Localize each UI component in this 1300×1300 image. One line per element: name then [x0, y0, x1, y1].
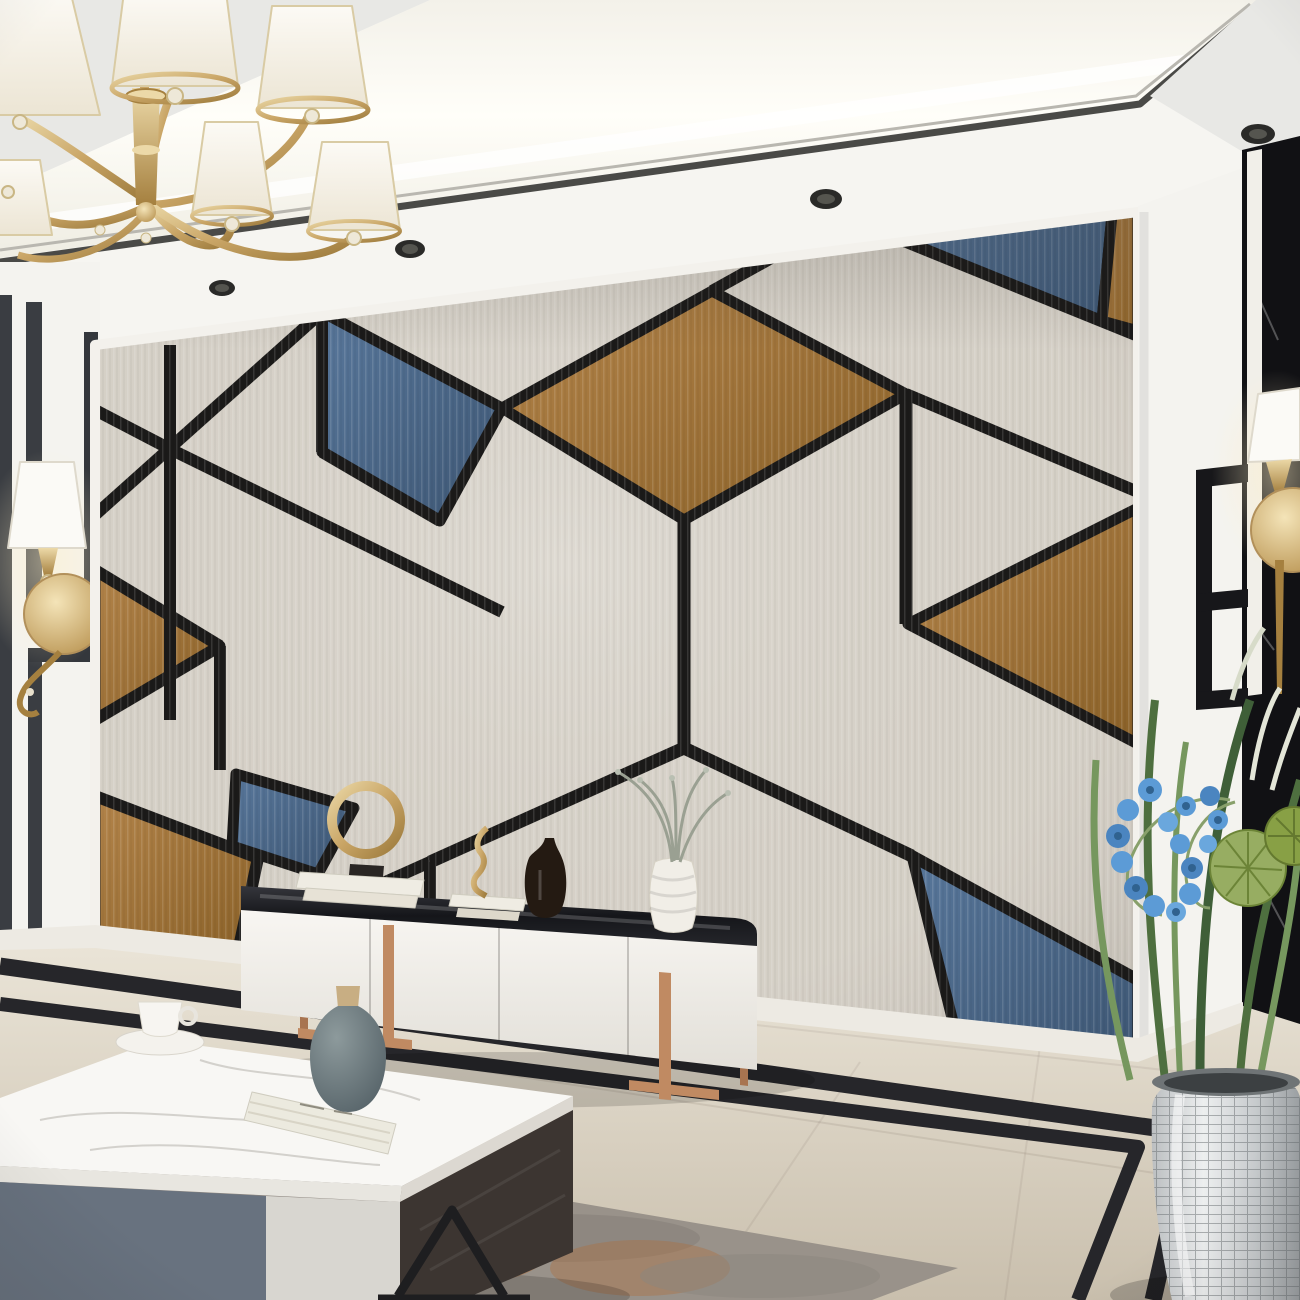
interior-render [0, 0, 1300, 1300]
scene-canvas [0, 0, 1300, 1300]
vignette [0, 0, 1300, 1300]
living-room-photo [0, 0, 1300, 1300]
atmosphere [0, 0, 1300, 1300]
layers-root [0, 0, 1300, 1300]
